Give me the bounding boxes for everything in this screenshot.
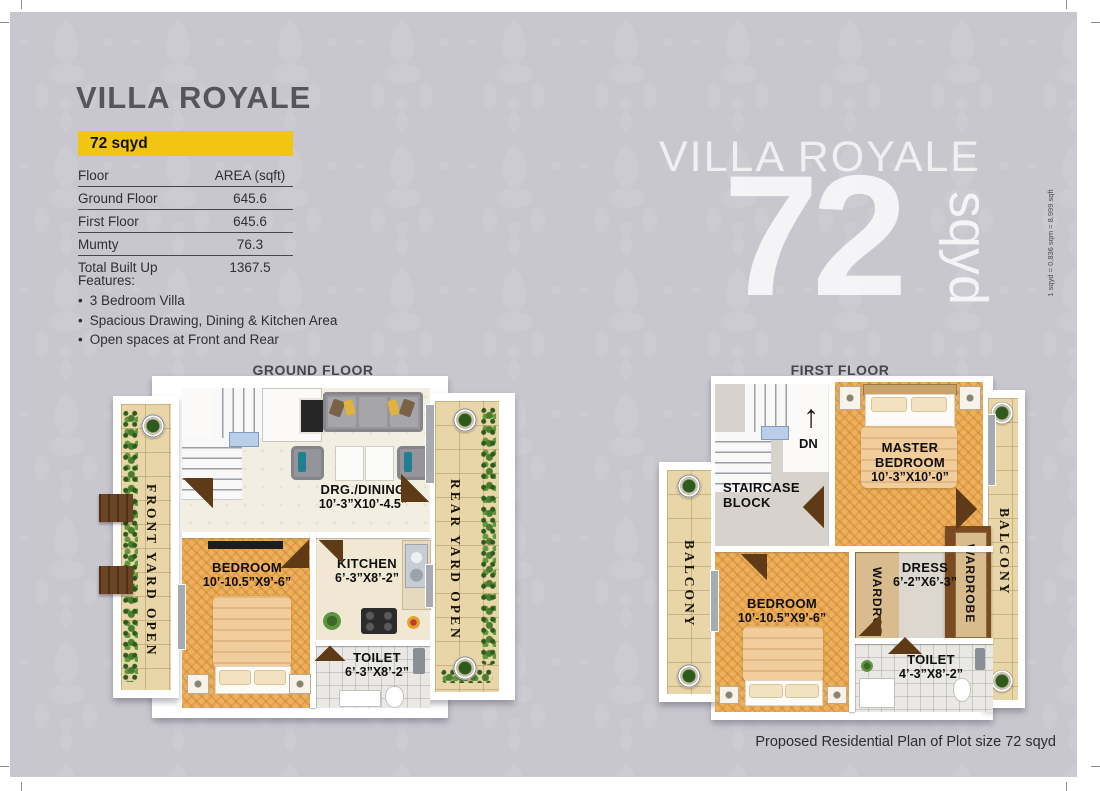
door-symbol: [281, 540, 309, 568]
crop-mark: [0, 22, 9, 23]
crop-mark: [0, 766, 9, 767]
room-dim: 10’-10.5”X9’-6”: [181, 575, 313, 590]
watermark-number: 72: [698, 154, 926, 318]
brochure-page: VILLA ROYALE 72 sqyd Floor AREA (sqft) G…: [0, 0, 1100, 791]
table-row: Ground Floor 645.6: [78, 187, 293, 210]
bullet: •: [78, 314, 83, 328]
nightstand: [839, 386, 861, 410]
room-dim: 6’-2”X6’-3”: [883, 575, 967, 590]
gf-front-yard-label: FRONT YARD OPEN: [143, 466, 159, 676]
bed-pillow: [219, 670, 251, 685]
room-dim: 6’-3”X8’-2”: [327, 665, 427, 680]
door-symbol: [401, 474, 429, 502]
coffee-table: [335, 446, 364, 481]
plant-icon: [323, 612, 341, 630]
feature-item: • 3 Bedroom Villa: [78, 294, 348, 308]
room-name: BEDROOM: [843, 455, 977, 470]
row-label: Mumty: [78, 237, 119, 252]
bed-blanket: [743, 626, 823, 682]
ff-balcony-right-label: BALCONY: [996, 492, 1012, 612]
room-dim: 10’-10.5”X9’-6”: [715, 611, 849, 626]
wall-console: [208, 541, 283, 549]
door-symbol: [183, 478, 213, 508]
row-label: Ground Floor: [78, 191, 158, 206]
area-table: Floor AREA (sqft) Ground Floor 645.6 Fir…: [78, 164, 293, 278]
gf-stairs-upper-flight: [213, 388, 262, 438]
ground-floor-plan: FRONT YARD OPEN REAR YARD OPEN: [113, 374, 515, 724]
features-heading: Features:: [78, 273, 348, 288]
wall: [182, 532, 430, 538]
ff-stairs-upper-flight: [745, 384, 789, 432]
crop-mark: [1091, 766, 1100, 767]
ff-toilet-label: TOILET 4’-3”X8’-2”: [871, 652, 991, 682]
crop-mark: [21, 0, 22, 9]
brochure-title: VILLA ROYALE: [76, 80, 311, 116]
feature-text: 3 Bedroom Villa: [90, 294, 185, 308]
glass-door: [425, 404, 435, 484]
room-name: MASTER: [843, 440, 977, 455]
nightstand: [827, 686, 847, 704]
window: [425, 564, 434, 608]
bed-pillow: [254, 670, 286, 685]
dn-arrow-icon: ↑: [803, 400, 819, 432]
ff-dress-label: DRESS 6’-2”X6’-3”: [883, 560, 967, 590]
crop-mark: [21, 782, 22, 791]
ff-bedroom-label: BEDROOM 10’-10.5”X9’-6”: [715, 596, 849, 626]
feature-item: • Spacious Drawing, Dining & Kitchen Are…: [78, 314, 348, 328]
row-value: 645.6: [207, 214, 293, 229]
col-header-area: AREA (sqft): [207, 168, 293, 183]
hedge: [123, 410, 138, 682]
feature-text: Spacious Drawing, Dining & Kitchen Area: [90, 314, 338, 328]
row-value: 645.6: [207, 191, 293, 206]
entry-steps: [99, 494, 133, 522]
planter-icon: [677, 664, 701, 688]
gf-stair-landing-step: [229, 432, 259, 447]
armchair-cushion: [404, 452, 412, 472]
entry-steps: [99, 566, 133, 594]
door-symbol: [859, 614, 881, 636]
wall: [316, 640, 430, 646]
coffee-table: [365, 446, 394, 481]
bed-blanket: [213, 596, 291, 668]
content-area: VILLA ROYALE 72 sqyd Floor AREA (sqft) G…: [10, 12, 1077, 777]
bullet: •: [78, 333, 83, 347]
plot-size-badge: 72 sqyd: [78, 131, 293, 156]
window: [177, 584, 186, 650]
room-dim: 10’-3”X10’-0”: [843, 470, 977, 485]
sofa-cushion: [359, 397, 387, 427]
wall: [855, 638, 993, 644]
nightstand: [187, 674, 209, 694]
conversion-note: 1 sqyd = 0.836 sqm = 8.999 sqft: [1045, 188, 1057, 298]
ff-stair-landing-step: [761, 426, 789, 440]
features-list: Features: • 3 Bedroom Villa • Spacious D…: [78, 273, 348, 347]
stove: [361, 608, 397, 634]
row-value: 76.3: [207, 237, 293, 252]
wall: [849, 552, 855, 712]
tv-unit: [299, 398, 325, 434]
first-floor-plan: BALCONY BALCONY ↑ DN STAIRCASE BLOCK: [653, 374, 1065, 724]
row-label: First Floor: [78, 214, 139, 229]
bed-pillow: [785, 684, 819, 698]
room-dim: 4’-3”X8’-2”: [871, 667, 991, 682]
table-row: Mumty 76.3: [78, 233, 293, 256]
col-header-floor: Floor: [78, 168, 109, 183]
watermark-unit: sqyd: [938, 191, 998, 301]
door-symbol: [741, 554, 767, 580]
armchair-cushion: [298, 452, 306, 472]
toilet-sink: [339, 690, 381, 707]
bullet: •: [78, 294, 83, 308]
gf-toilet-label: TOILET 6’-3”X8’-2”: [327, 650, 427, 680]
armchair: [291, 446, 324, 480]
ff-balcony-left-label: BALCONY: [681, 514, 697, 654]
nightstand: [959, 386, 981, 410]
gf-stair-landing: [182, 388, 213, 438]
sofa: [323, 392, 423, 432]
crop-mark: [1066, 782, 1067, 791]
door-symbol: [319, 540, 343, 564]
fruit-bowl-icon: [407, 616, 420, 629]
planter-icon: [453, 408, 477, 432]
room-dim: 6’-3”X8’-2”: [319, 571, 415, 586]
crop-mark: [1091, 22, 1100, 23]
dn-label: DN: [799, 436, 818, 451]
ff-master-bedroom-label: MASTER BEDROOM 10’-3”X10’-0”: [843, 440, 977, 485]
crop-mark: [1066, 0, 1067, 9]
room-name: BEDROOM: [715, 596, 849, 611]
feature-item: • Open spaces at Front and Rear: [78, 333, 348, 347]
planter-icon: [677, 474, 701, 498]
plan-caption: Proposed Residential Plan of Plot size 7…: [650, 734, 1056, 750]
bed-pillow: [749, 684, 783, 698]
nightstand: [719, 686, 739, 704]
nightstand: [289, 674, 311, 694]
planter-icon: [991, 670, 1013, 692]
bed-pillow: [871, 397, 907, 412]
feature-text: Open spaces at Front and Rear: [90, 333, 279, 347]
table-row: First Floor 645.6: [78, 210, 293, 233]
bed-pillow: [911, 397, 947, 412]
toilet-sink: [859, 678, 895, 708]
glass-door: [987, 414, 996, 486]
planter-icon: [141, 414, 165, 438]
table-header-row: Floor AREA (sqft): [78, 164, 293, 187]
room-name: DRESS: [883, 560, 967, 575]
hedge: [481, 407, 496, 665]
toilet-seat: [385, 686, 404, 708]
